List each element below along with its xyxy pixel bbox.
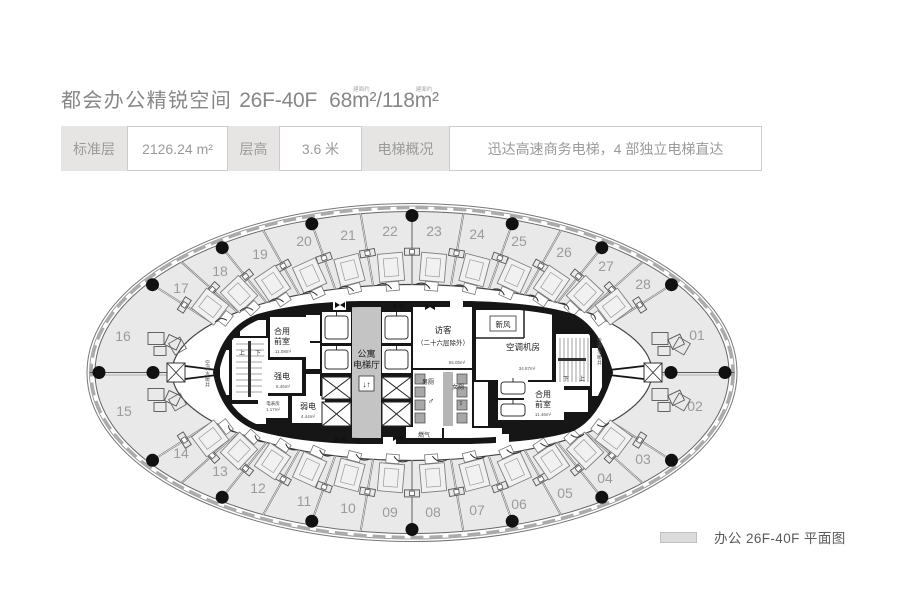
svg-text:公寓: 公寓 [357, 348, 375, 359]
svg-text:27: 27 [598, 258, 614, 274]
svg-text:前室: 前室 [535, 399, 551, 409]
svg-text:17: 17 [173, 280, 189, 296]
svg-text:25: 25 [511, 233, 527, 249]
svg-text:↓↑: ↓↑ [363, 380, 371, 389]
svg-text:访客: 访客 [434, 325, 452, 335]
svg-text:男厕: 男厕 [422, 379, 434, 386]
svg-text:电梯厅: 电梯厅 [353, 359, 380, 370]
svg-text:26: 26 [556, 244, 572, 260]
svg-text:空调机房: 空调机房 [506, 342, 540, 352]
svg-text:01: 01 [689, 327, 705, 343]
svg-text:上: 上 [239, 349, 245, 357]
svg-text:19: 19 [252, 246, 268, 262]
svg-text:55.05m²: 55.05m² [449, 360, 466, 365]
svg-text:强电: 强电 [274, 371, 290, 381]
svg-text:20: 20 [296, 233, 312, 249]
svg-text:10: 10 [340, 500, 356, 516]
svg-text:06: 06 [511, 496, 527, 512]
svg-text:合用: 合用 [535, 389, 551, 399]
svg-text:x: x [433, 411, 436, 417]
svg-text:上: 上 [579, 375, 585, 383]
svg-text:05: 05 [557, 485, 573, 501]
svg-text:（二十六层除外）: （二十六层除外） [417, 338, 469, 347]
svg-text:11: 11 [297, 493, 312, 509]
svg-text:4.44m²: 4.44m² [301, 414, 316, 419]
svg-text:下: 下 [563, 376, 569, 383]
svg-text:1.17m²: 1.17m² [266, 407, 281, 412]
svg-text:11.46m²: 11.46m² [535, 412, 552, 417]
svg-text:08: 08 [425, 504, 441, 520]
svg-text:18: 18 [212, 263, 228, 279]
svg-text:07: 07 [469, 502, 485, 518]
svg-text:11.08m²: 11.08m² [275, 349, 292, 354]
svg-text:12: 12 [250, 480, 266, 496]
svg-text:8.46m²: 8.46m² [276, 384, 291, 389]
svg-text:弱电: 弱电 [300, 401, 316, 411]
svg-text:15: 15 [116, 403, 132, 419]
svg-text:14: 14 [173, 445, 189, 461]
svg-text:新风: 新风 [496, 319, 511, 329]
svg-text:♂: ♂ [428, 396, 435, 406]
svg-text:13: 13 [212, 463, 228, 479]
svg-text:24: 24 [469, 226, 485, 242]
svg-text:合用: 合用 [274, 326, 290, 336]
svg-text:09: 09 [382, 504, 398, 520]
svg-text:28: 28 [635, 276, 651, 292]
svg-text:♀: ♀ [458, 398, 465, 408]
svg-text:03: 03 [635, 451, 651, 467]
svg-text:21: 21 [340, 227, 356, 243]
svg-text:04: 04 [597, 470, 613, 486]
svg-text:女厕: 女厕 [452, 383, 464, 391]
svg-text:空调水暖井: 空调水暖井 [596, 338, 602, 367]
svg-text:电表房: 电表房 [266, 400, 280, 407]
svg-text:34.87m²: 34.87m² [519, 366, 536, 371]
svg-text:23: 23 [426, 223, 442, 239]
svg-text:空调水暖井: 空调水暖井 [204, 360, 210, 389]
svg-text:下: 下 [255, 350, 261, 357]
svg-text:燃气: 燃气 [418, 431, 430, 439]
svg-text:16: 16 [115, 328, 131, 344]
svg-text:22: 22 [382, 223, 398, 239]
svg-text:前室: 前室 [274, 336, 290, 346]
